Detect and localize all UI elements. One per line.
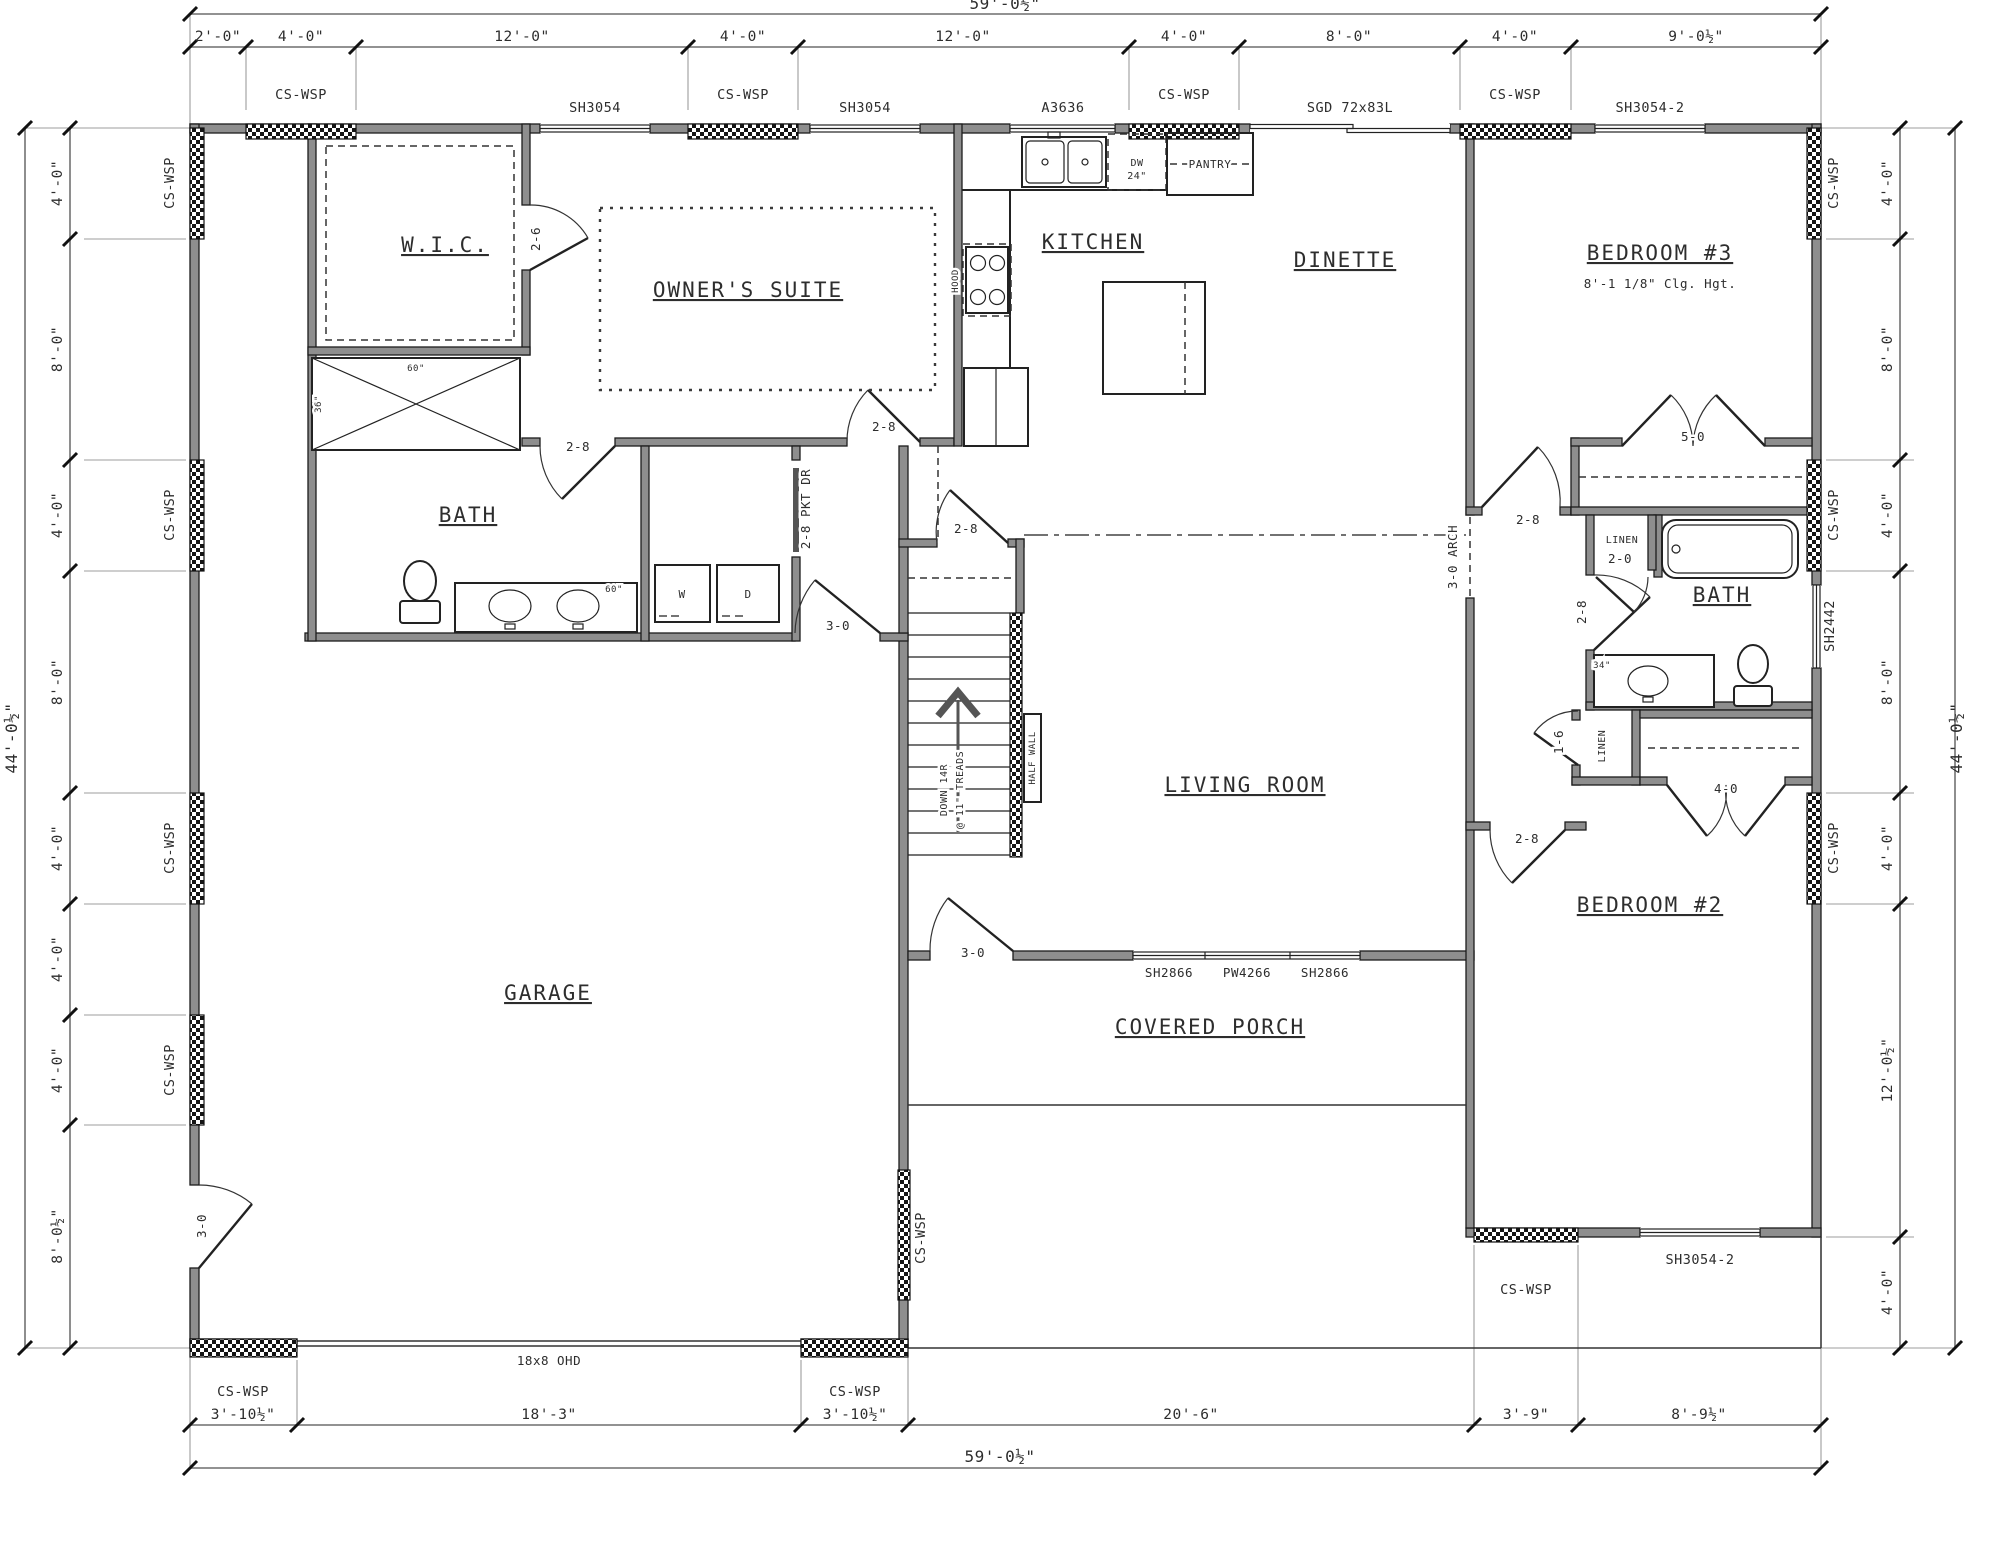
- dim-top-seg: 8'-0": [1326, 29, 1372, 45]
- door-bath2: [1594, 575, 1650, 650]
- dim-top-seg: 12'-0": [494, 29, 549, 45]
- stairs-note-1: DOWN 14R: [939, 763, 950, 816]
- door-size: 2-8: [1515, 831, 1539, 846]
- bathtub: [1662, 520, 1798, 578]
- dim-left-seg: 4'-0": [50, 936, 66, 982]
- shear-panel-label: CS-WSP: [913, 1212, 929, 1264]
- window-label: A3636: [1041, 100, 1084, 116]
- dim-bottom-seg: 3'-10½": [823, 1407, 888, 1423]
- shear-panel-label: CS-WSP: [162, 822, 178, 874]
- shear-panel-label: CS-WSP: [1158, 87, 1210, 103]
- room-label-garage: GARAGE: [504, 981, 592, 1005]
- dishwasher-label: DW: [1130, 158, 1144, 169]
- window-sh2442: [1812, 585, 1821, 668]
- dim-bottom-seg: 18'-3": [521, 1407, 576, 1423]
- dishwasher-size: 24": [1127, 171, 1147, 182]
- hood-label: HOOD: [951, 269, 961, 293]
- toilet-bath2: [1734, 645, 1772, 706]
- window-bed2: [1640, 1228, 1760, 1237]
- door-size: 4-0: [1714, 781, 1738, 796]
- window-triple-living: [1133, 951, 1360, 960]
- linen-label: LINEN: [1597, 730, 1608, 763]
- washer-label: W: [678, 588, 685, 601]
- shear-panel-label: CS-WSP: [1826, 489, 1842, 541]
- window-label: SH3054: [569, 100, 621, 116]
- dim-left-overall: 44'-0½": [2, 703, 21, 774]
- dim-top-overall: 59'-0½": [970, 0, 1041, 13]
- shear-panel-label: CS-WSP: [162, 489, 178, 541]
- door-size: 2-8: [1574, 600, 1589, 624]
- door-size: 2-8: [954, 521, 978, 536]
- room-label-bath2: BATH: [1693, 583, 1752, 607]
- dim-top-seg: 4'-0": [1161, 29, 1207, 45]
- dim-right-seg: 4'-0": [1880, 825, 1896, 871]
- kitchen-sink: [1022, 132, 1106, 187]
- linen-label: LINEN: [1606, 535, 1639, 546]
- dim-left-seg: 4'-0": [50, 1047, 66, 1093]
- door-size: 3-0: [826, 618, 850, 633]
- dim-bottom-overall: 59'-0½": [965, 1447, 1036, 1466]
- window-label: SH2866: [1145, 965, 1193, 980]
- shower-width: 60": [407, 364, 425, 374]
- toilet-owner: [400, 561, 440, 623]
- dim-left-seg: 8'-0": [50, 659, 66, 705]
- door-size: 1-6: [1551, 730, 1566, 754]
- floor-plan-drawing: 59'-0½" 2'-0" 4'-0" 12'-0" 4'-0" 12'-0" …: [0, 0, 1999, 1545]
- dim-bottom-seg: 8'-9½": [1671, 1407, 1726, 1423]
- arch-label: 3-0 ARCH: [1445, 525, 1460, 589]
- shear-panel-label: CS-WSP: [162, 1044, 178, 1096]
- window-sh3054-1: [540, 124, 650, 133]
- dim-left-seg: 4'-0": [50, 825, 66, 871]
- door-size: 2-8: [1516, 512, 1540, 527]
- room-label-kitchen: KITCHEN: [1042, 230, 1145, 254]
- window-a3636: [1010, 124, 1115, 133]
- window-label: SH3054-2: [1665, 1252, 1734, 1268]
- room-label-bed2: BEDROOM #2: [1577, 893, 1723, 917]
- room-label-owners-suite: OWNER'S SUITE: [653, 278, 843, 302]
- window-label: SH2866: [1301, 965, 1349, 980]
- window-label: SH3054-2: [1615, 100, 1684, 116]
- window-label: SH3054: [839, 100, 891, 116]
- room-label-bath1: BATH: [439, 503, 498, 527]
- refrigerator: [964, 368, 1028, 446]
- vanity-size: 60": [605, 585, 623, 595]
- range: [963, 244, 1011, 316]
- door-size: 3-0: [194, 1214, 209, 1238]
- shear-panel-label: CS-WSP: [829, 1384, 881, 1400]
- dim-left-seg: 4'-0": [50, 160, 66, 206]
- half-wall-label: HALF WALL: [1028, 731, 1038, 784]
- dim-left-seg: 8'-0": [50, 326, 66, 372]
- vanity-bath2: [1594, 655, 1714, 707]
- pantry-label: PANTRY: [1189, 158, 1232, 171]
- shear-panel-label: CS-WSP: [162, 157, 178, 209]
- shear-panel-label: CS-WSP: [1826, 157, 1842, 209]
- door-porch-entry: [930, 898, 1013, 951]
- dim-right-seg: 12'-0½": [1880, 1038, 1896, 1103]
- dim-bottom-seg: 20'-6": [1163, 1407, 1218, 1423]
- door-owners-suite: [847, 390, 920, 442]
- floor-plan-sheet: 59'-0½" 2'-0" 4'-0" 12'-0" 4'-0" 12'-0" …: [0, 0, 1999, 1545]
- door-size: 3-0: [961, 945, 985, 960]
- shear-panel-label: CS-WSP: [1500, 1282, 1552, 1298]
- door-size: 2-6: [528, 227, 543, 251]
- door-bed3: [1482, 447, 1560, 507]
- shear-panel-label: CS-WSP: [1826, 822, 1842, 874]
- room-label-wic: W.I.C.: [401, 233, 489, 257]
- dim-right-seg: 4'-0": [1880, 492, 1896, 538]
- dim-bottom-seg: 3'-9": [1503, 1407, 1549, 1423]
- room-label-living: LIVING ROOM: [1164, 773, 1325, 797]
- dim-left-seg: 4'-0": [50, 492, 66, 538]
- door-label-sgd: SGD 72x83L: [1307, 100, 1393, 116]
- room-label-bed3: BEDROOM #3: [1587, 241, 1733, 265]
- window-sh3054-2: [810, 124, 920, 133]
- dim-top-seg: 4'-0": [278, 29, 324, 45]
- window-label: PW4266: [1223, 965, 1271, 980]
- dim-right-seg: 8'-0": [1880, 659, 1896, 705]
- vanity-size: 34": [1593, 661, 1611, 671]
- door-size: 2-0: [1608, 551, 1632, 566]
- shear-panel-label: CS-WSP: [1489, 87, 1541, 103]
- shear-panel-label: CS-WSP: [275, 87, 327, 103]
- shower-depth: 36": [314, 395, 324, 413]
- dim-left-seg: 8'-0½": [50, 1208, 66, 1263]
- dryer-label: D: [744, 588, 751, 601]
- window-sh3054-2-twin: [1595, 124, 1705, 133]
- island-table: [1103, 282, 1205, 394]
- dim-top-seg: 9'-0½": [1668, 29, 1723, 45]
- dim-right-seg: 4'-0": [1880, 160, 1896, 206]
- room-label-porch: COVERED PORCH: [1115, 1015, 1305, 1039]
- bed3-ceiling-note: 8'-1 1/8" Clg. Hgt.: [1584, 276, 1737, 291]
- dim-top-seg: 4'-0": [1492, 29, 1538, 45]
- dim-right-overall: 44'-0½": [1947, 703, 1966, 774]
- stairs-note-2: @ 11" TREADS: [955, 751, 966, 829]
- door-size: 5-0: [1681, 429, 1705, 444]
- door-size: 2-8: [872, 419, 896, 434]
- door-size: 2-8 PKT DR: [798, 469, 813, 549]
- window-label: SH2442: [1822, 600, 1838, 652]
- dim-top-seg: 4'-0": [720, 29, 766, 45]
- shear-panel-label: CS-WSP: [717, 87, 769, 103]
- dim-right-seg: 4'-0": [1880, 1269, 1896, 1315]
- room-label-dinette: DINETTE: [1294, 248, 1397, 272]
- dim-right-seg: 8'-0": [1880, 326, 1896, 372]
- dim-bottom-seg: 3'-10½": [211, 1407, 276, 1423]
- garage-door-label: 18x8 OHD: [517, 1353, 581, 1368]
- dim-top-seg: 12'-0": [935, 29, 990, 45]
- shear-panel-label: CS-WSP: [217, 1384, 269, 1400]
- dim-top-seg: 2'-0": [195, 29, 241, 45]
- door-size: 2-8: [566, 439, 590, 454]
- sliding-glass-door: [1250, 124, 1450, 133]
